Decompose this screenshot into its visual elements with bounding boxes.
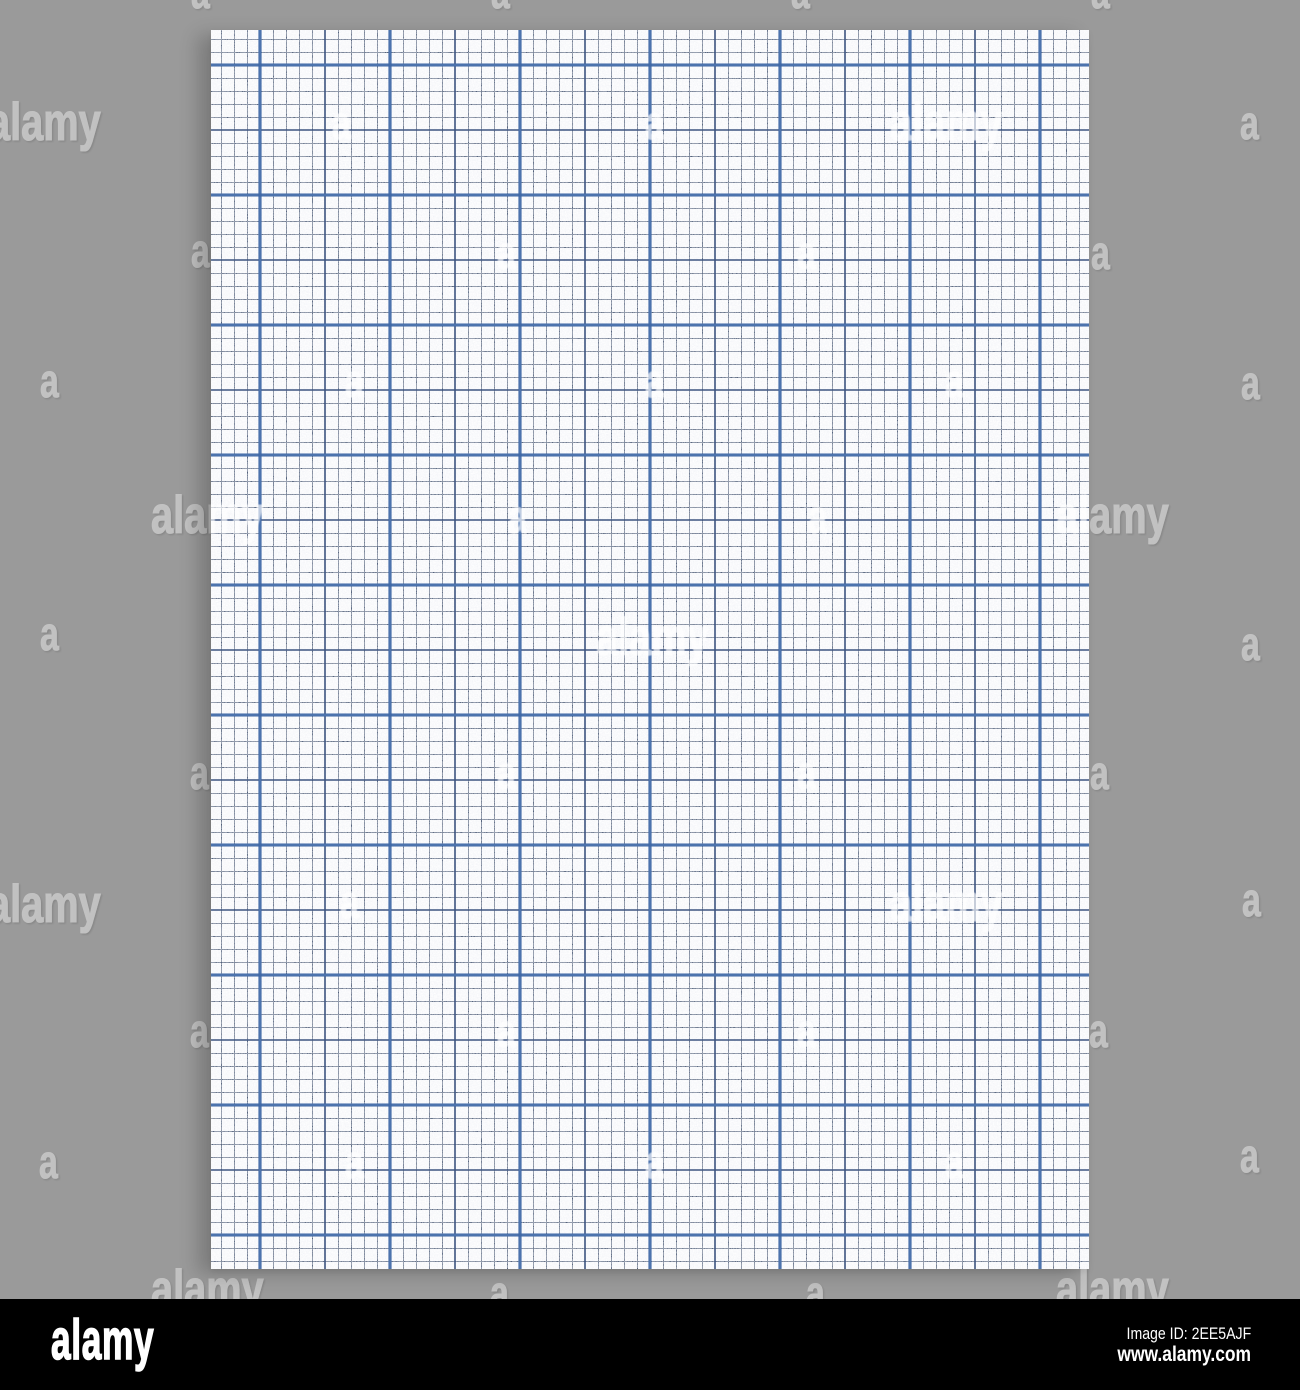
svg-text:a: a <box>340 876 360 929</box>
svg-text:a: a <box>491 0 511 18</box>
svg-text:a: a <box>497 227 517 280</box>
svg-text:a: a <box>645 355 665 408</box>
svg-text:a: a <box>40 608 60 661</box>
svg-text:a: a <box>345 355 365 408</box>
svg-text:alamy: alamy <box>1056 485 1089 544</box>
svg-text:a: a <box>1089 1005 1109 1058</box>
svg-text:a: a <box>1091 227 1111 280</box>
svg-text:a: a <box>1090 747 1110 800</box>
svg-text:a: a <box>497 1005 517 1058</box>
svg-text:a: a <box>797 747 817 800</box>
svg-text:a: a <box>191 0 211 18</box>
svg-text:a: a <box>40 355 60 408</box>
svg-text:a: a <box>1241 618 1261 671</box>
svg-text:a: a <box>645 1136 665 1189</box>
svg-text:a: a <box>945 355 965 408</box>
svg-text:a: a <box>1241 357 1261 410</box>
svg-text:a: a <box>190 1005 210 1058</box>
svg-text:a: a <box>645 97 665 150</box>
svg-text:alamy: alamy <box>596 607 709 666</box>
svg-text:alamy: alamy <box>890 92 1003 151</box>
svg-text:a: a <box>190 747 210 800</box>
svg-text:a: a <box>1242 874 1262 927</box>
svg-text:a: a <box>1240 1130 1260 1183</box>
svg-text:alamy: alamy <box>890 873 1003 932</box>
svg-text:a: a <box>332 97 352 150</box>
svg-text:a: a <box>791 0 811 18</box>
svg-text:a: a <box>797 227 817 280</box>
svg-text:a: a <box>345 1136 365 1189</box>
svg-text:alamy: alamy <box>211 485 264 544</box>
svg-text:a: a <box>1091 0 1111 18</box>
svg-text:a: a <box>797 1005 817 1058</box>
svg-text:a: a <box>945 1136 965 1189</box>
svg-text:a: a <box>497 747 517 800</box>
svg-text:a: a <box>39 1136 59 1189</box>
svg-text:a: a <box>1240 97 1260 150</box>
svg-text:alamy: alamy <box>0 92 101 151</box>
svg-text:a: a <box>508 491 528 544</box>
svg-text:alamy: alamy <box>0 874 101 933</box>
svg-text:a: a <box>191 225 211 278</box>
svg-text:a: a <box>808 491 828 544</box>
